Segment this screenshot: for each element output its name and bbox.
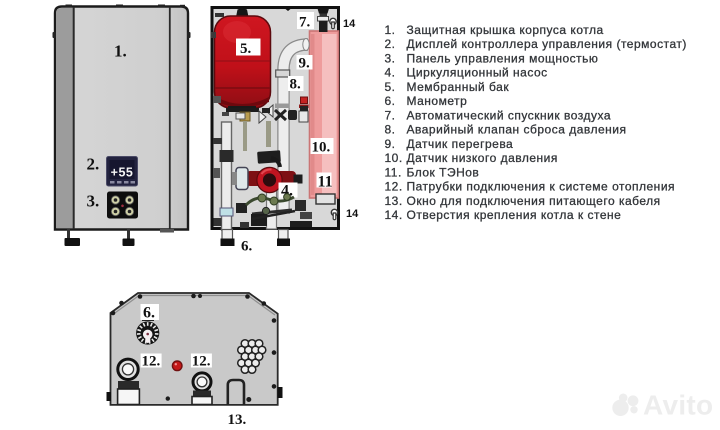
- svg-text:Блок ТЭНов: Блок ТЭНов: [407, 165, 480, 179]
- svg-text:6.: 6.: [143, 305, 155, 322]
- svg-text:Манометр: Манометр: [407, 94, 468, 108]
- svg-text:Панель управления мощностью: Панель управления мощностью: [407, 52, 599, 66]
- svg-text:8.: 8.: [290, 77, 302, 93]
- svg-text:2.: 2.: [385, 37, 396, 51]
- svg-text:Датчик низкого давления: Датчик низкого давления: [407, 151, 558, 165]
- svg-text:9.: 9.: [385, 137, 396, 151]
- svg-text:10.: 10.: [312, 140, 331, 156]
- svg-text:5.: 5.: [385, 80, 396, 94]
- svg-text:Avito: Avito: [643, 390, 713, 421]
- svg-text:14: 14: [343, 18, 356, 30]
- svg-text:9.: 9.: [299, 55, 311, 71]
- svg-text:Отверстия крепления котла к ст: Отверстия крепления котла к стене: [407, 208, 622, 222]
- svg-text:+55: +55: [111, 166, 134, 180]
- svg-text:8.: 8.: [385, 123, 396, 137]
- svg-text:Датчик перегрева: Датчик перегрева: [407, 137, 514, 151]
- svg-text:Дисплей контроллера управления: Дисплей контроллера управления (термоста…: [407, 37, 687, 51]
- svg-text:13.: 13.: [385, 194, 403, 208]
- svg-text:4.: 4.: [385, 66, 396, 80]
- svg-text:13.: 13.: [228, 412, 247, 428]
- svg-text:Аварийный клапан сброса давлен: Аварийный клапан сброса давления: [407, 123, 627, 137]
- svg-text:Патрубки подключения к системе: Патрубки подключения к системе отопления: [407, 180, 676, 194]
- svg-text:Защитная крышка корпуса котла: Защитная крышка корпуса котла: [407, 23, 604, 37]
- svg-text:5.: 5.: [240, 41, 252, 57]
- svg-text:3.: 3.: [385, 52, 396, 66]
- svg-text:10.: 10.: [385, 151, 403, 165]
- svg-text:Циркуляционный насос: Циркуляционный насос: [407, 66, 548, 80]
- svg-text:6.: 6.: [385, 94, 396, 108]
- svg-text:1.: 1.: [114, 42, 127, 61]
- svg-text:Автоматический спускник воздух: Автоматический спускник воздуха: [407, 108, 612, 122]
- svg-text:11.: 11.: [385, 165, 402, 179]
- svg-text:6.: 6.: [241, 239, 253, 255]
- svg-text:Окно для подключения питающего: Окно для подключения питающего кабеля: [407, 194, 661, 208]
- svg-text:3.: 3.: [87, 192, 100, 211]
- svg-text:7.: 7.: [385, 108, 396, 122]
- svg-text:11: 11: [318, 174, 333, 191]
- svg-text:14.: 14.: [385, 208, 403, 222]
- svg-text:Мембранный бак: Мембранный бак: [407, 80, 510, 94]
- svg-text:12.: 12.: [142, 354, 161, 370]
- svg-text:12.: 12.: [192, 354, 211, 370]
- svg-text:14: 14: [346, 208, 359, 220]
- svg-text:1.: 1.: [385, 23, 396, 37]
- svg-text:2.: 2.: [87, 155, 100, 174]
- svg-text:7.: 7.: [299, 15, 311, 31]
- svg-text:12.: 12.: [385, 180, 403, 194]
